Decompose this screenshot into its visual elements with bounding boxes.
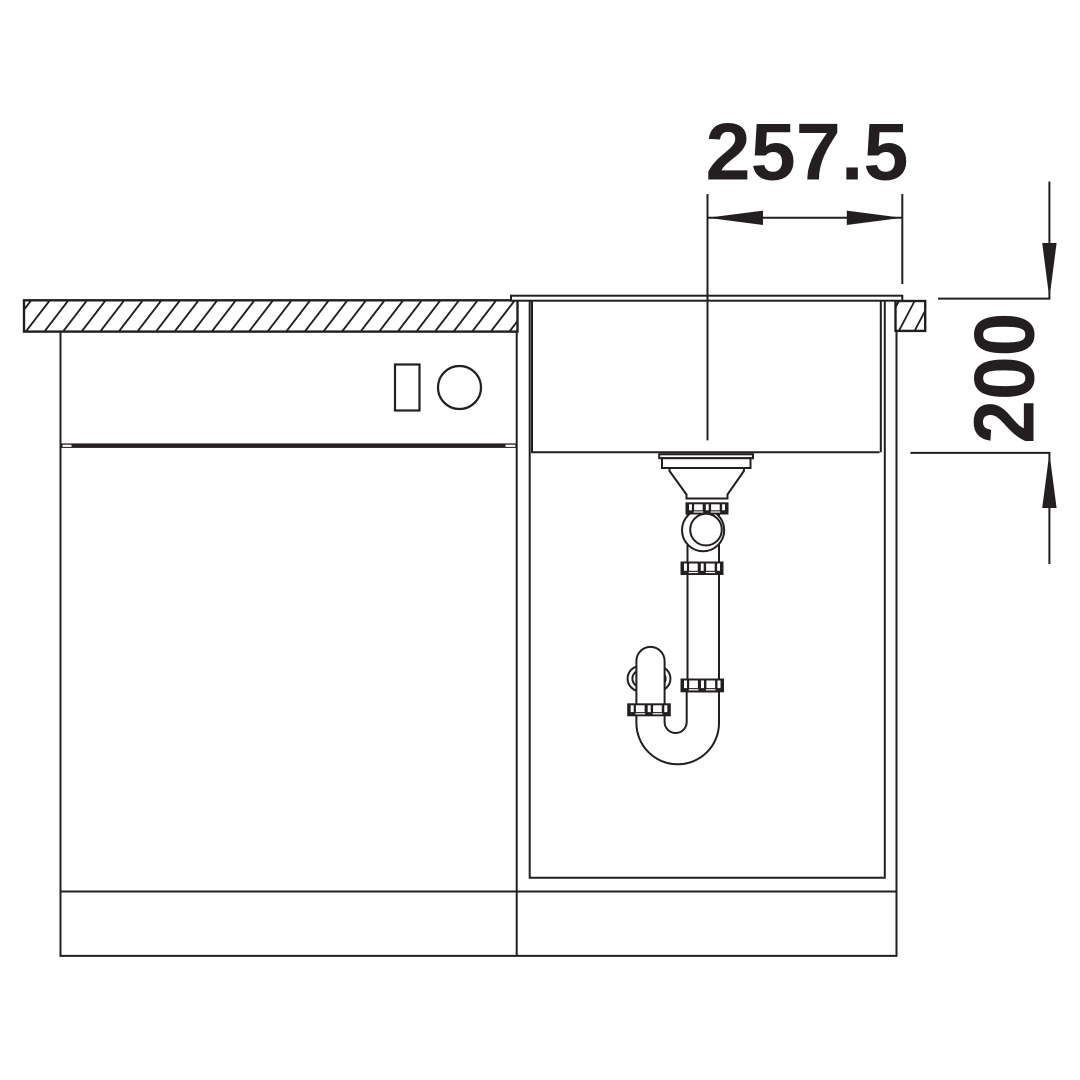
svg-text:200: 200 [958, 313, 1053, 444]
svg-text:257.5: 257.5 [706, 108, 909, 198]
